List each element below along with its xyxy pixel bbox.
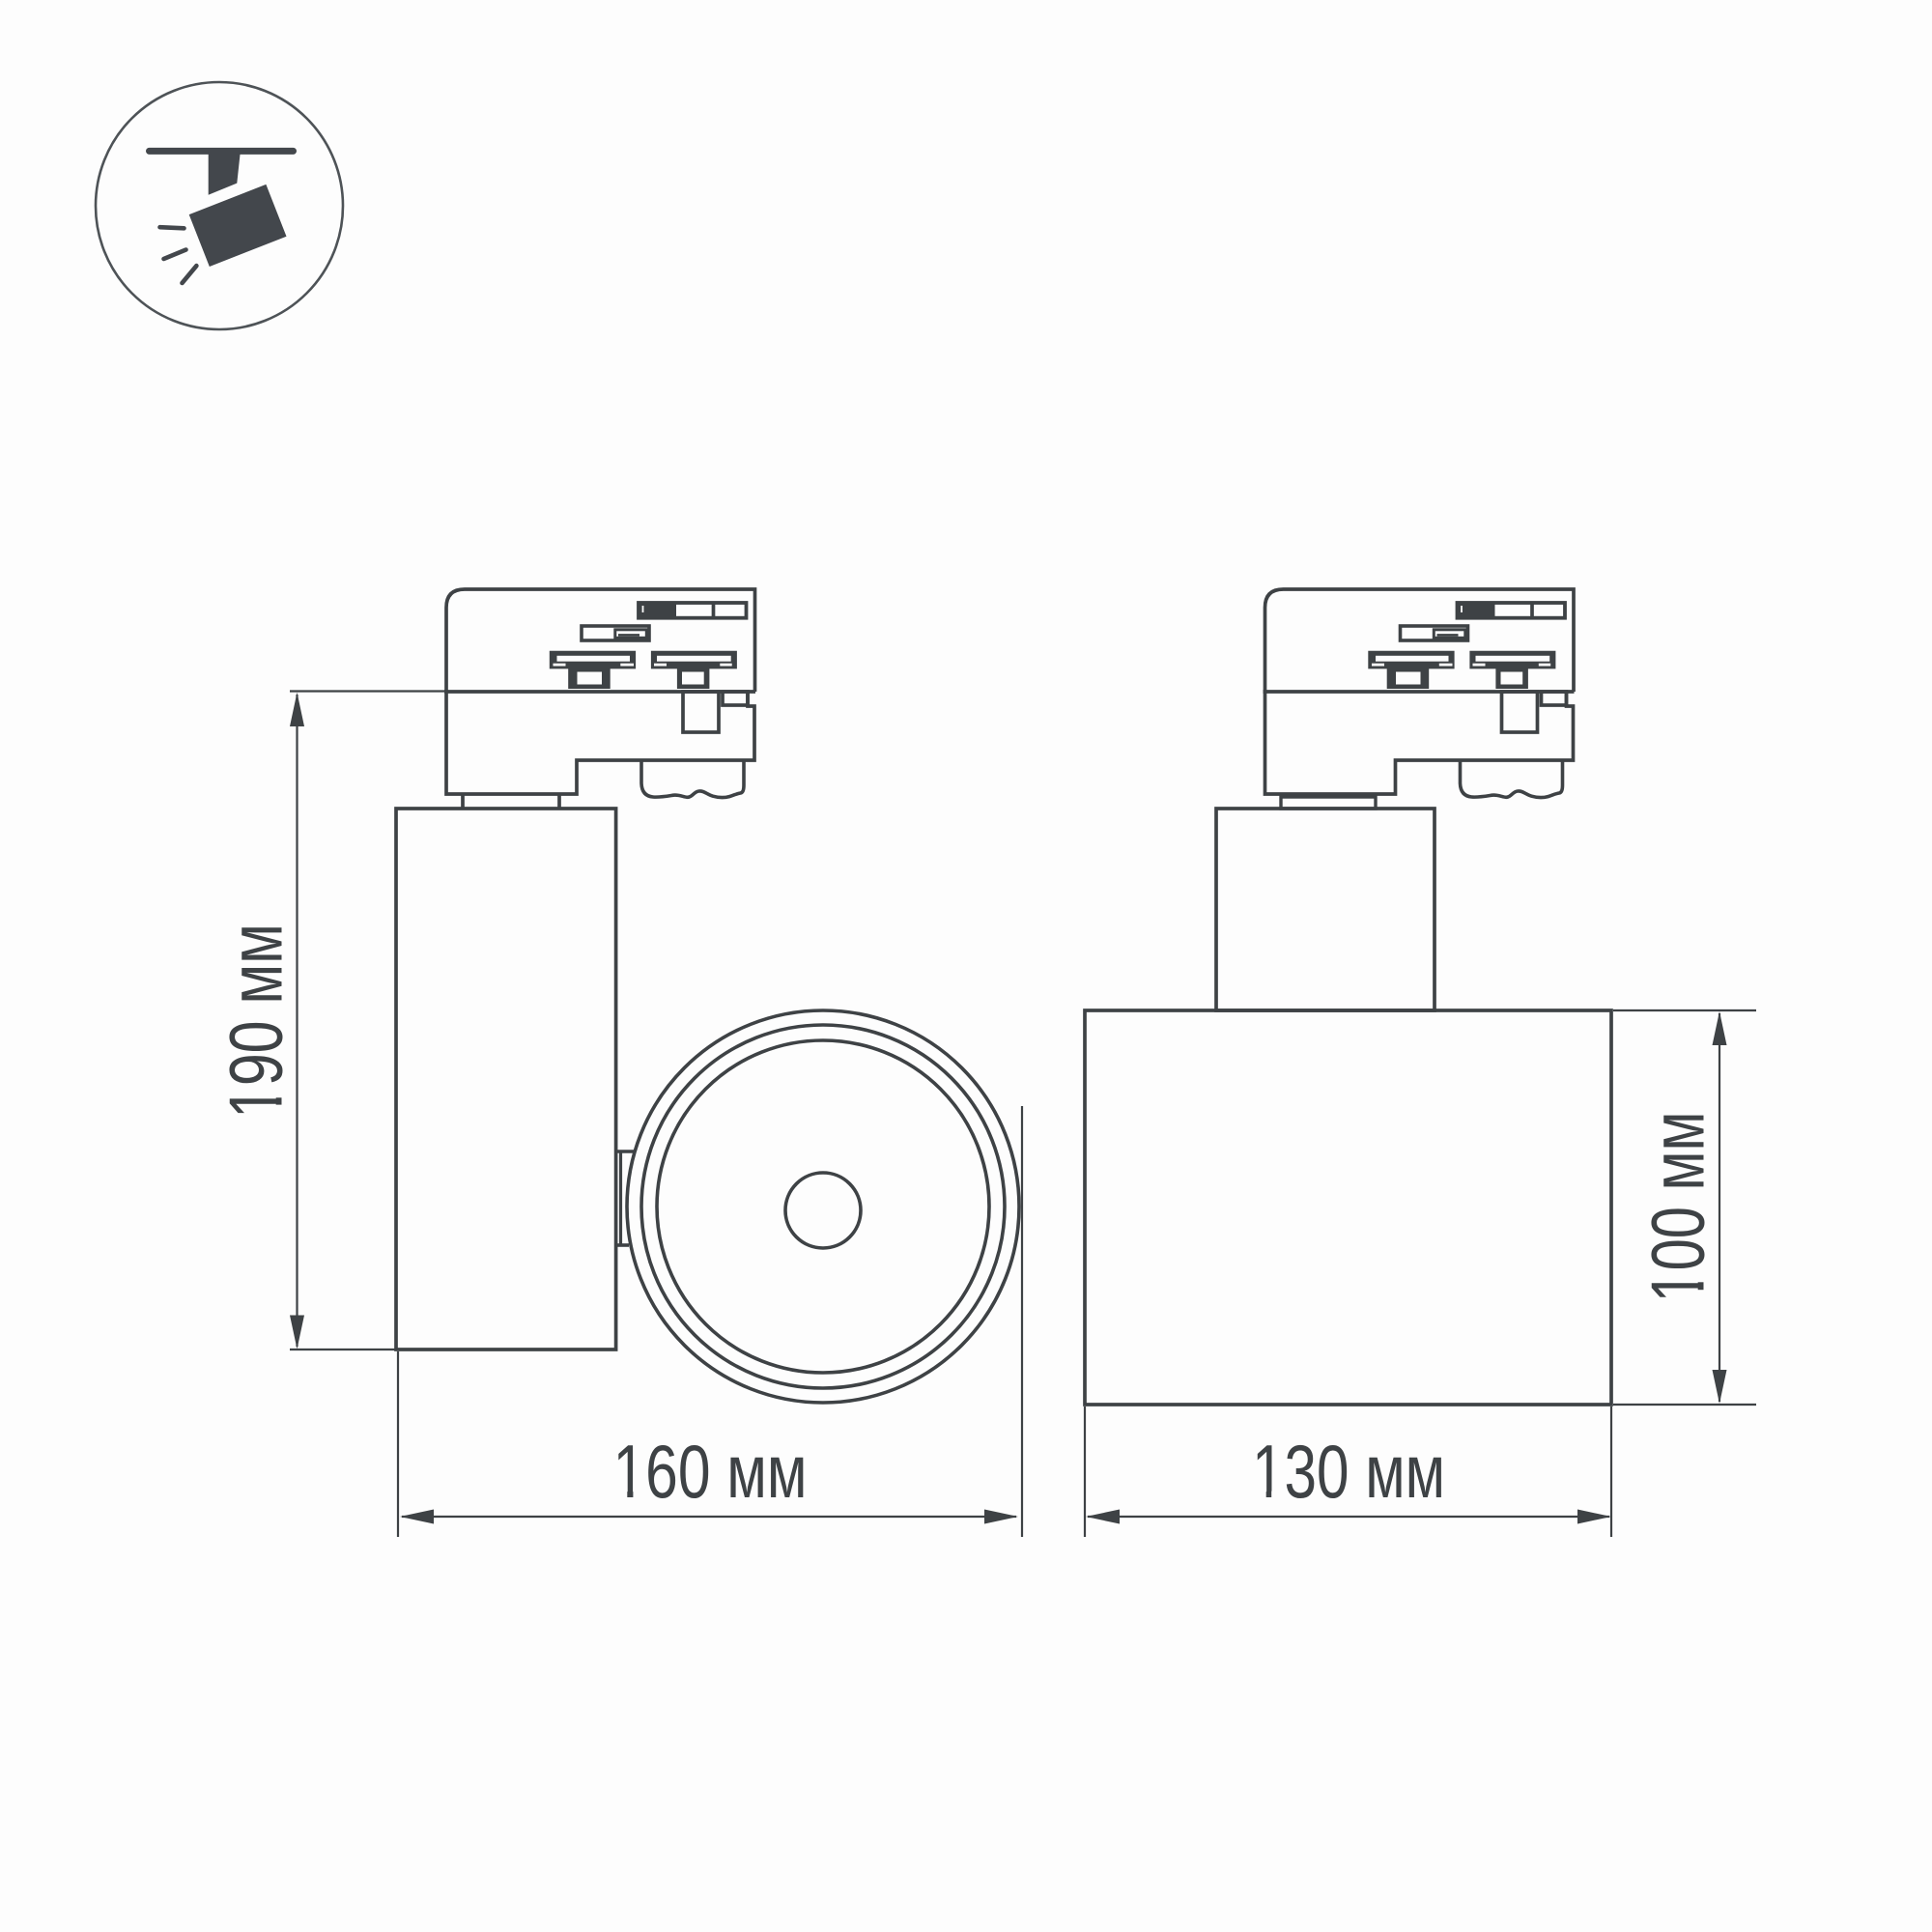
svg-text:190 мм: 190 мм: [213, 923, 298, 1119]
svg-text:160 мм: 160 мм: [613, 1429, 808, 1514]
svg-text:130 мм: 130 мм: [1252, 1429, 1445, 1514]
svg-text:100 мм: 100 мм: [1635, 1112, 1720, 1303]
